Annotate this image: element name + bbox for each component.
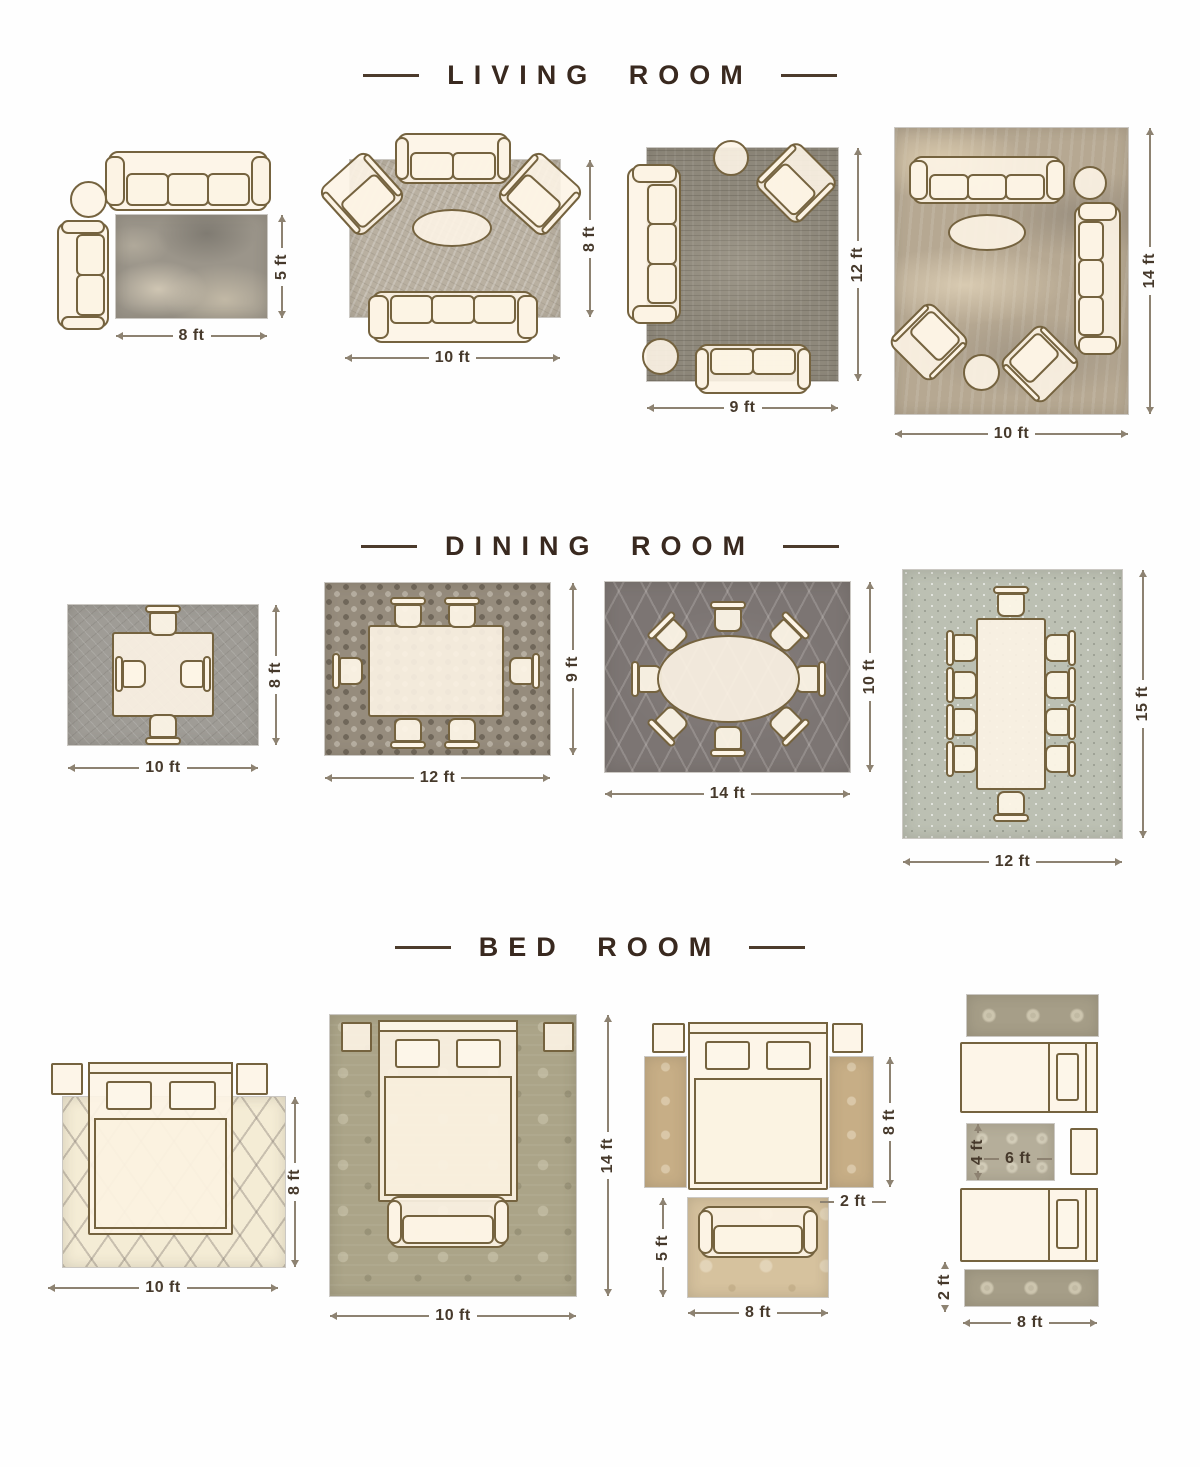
dimension-label: 14 ft: [599, 1132, 617, 1179]
blanket: [694, 1078, 822, 1184]
sofa: [1074, 205, 1121, 352]
dining-chair: [180, 660, 204, 688]
round-side-table: [1073, 166, 1107, 200]
dining-chair: [953, 671, 977, 699]
headboard: [88, 1062, 233, 1074]
height-dimension: 14 ft: [598, 1015, 618, 1296]
dimension-label: 9 ft: [724, 399, 762, 417]
dimension-label: 8 ft: [173, 327, 211, 345]
width-dimension: 10 ft: [345, 348, 560, 368]
dining-chair: [953, 745, 977, 773]
dimension-label: 8 ft: [1011, 1314, 1049, 1332]
dining-chair: [149, 612, 177, 636]
dimension-label: 5 ft: [273, 248, 291, 286]
middle-rug-width-dimension: 6 ft: [984, 1149, 1052, 1169]
rug-size-guide: LIVING ROOM 8 ft 5 ft: [0, 0, 1200, 1467]
dining-chair: [1045, 634, 1069, 662]
dining-table: [976, 618, 1046, 790]
twin-bed: [960, 1042, 1098, 1113]
runner-width-dimension: 2 ft: [820, 1192, 886, 1212]
pillow: [1056, 1199, 1079, 1249]
width-dimension: 10 ft: [68, 758, 258, 778]
dimension-label: 12 ft: [414, 769, 461, 787]
dimension-label: 10 ft: [988, 425, 1035, 443]
dining-chair: [997, 593, 1025, 617]
bench: [700, 1206, 816, 1258]
dining-chair: [714, 726, 742, 750]
nightstand: [543, 1022, 574, 1052]
blanket: [94, 1118, 227, 1229]
bed: [378, 1020, 518, 1202]
runner-rug: [830, 1057, 873, 1187]
twin-bed: [960, 1188, 1098, 1262]
dining-chair: [448, 718, 476, 742]
dimension-label: 8 ft: [739, 1304, 777, 1322]
loveseat: [697, 344, 809, 394]
bench: [389, 1196, 507, 1248]
dimension-label: 2 ft: [936, 1268, 954, 1306]
height-dimension: 8 ft: [580, 160, 600, 317]
dining-chair: [394, 718, 422, 742]
round-side-table: [70, 181, 107, 218]
dimension-label: 10 ft: [429, 349, 476, 367]
dimension-label: 5 ft: [654, 1229, 672, 1267]
dining-chair: [1045, 745, 1069, 773]
nightstand: [341, 1022, 372, 1052]
height-dimension: 14 ft: [1140, 128, 1160, 414]
dimension-label: 2 ft: [834, 1193, 872, 1211]
width-dimension: 14 ft: [605, 784, 850, 804]
dining-chair: [149, 714, 177, 738]
sofa: [627, 167, 681, 321]
width-dimension: 8 ft: [963, 1313, 1097, 1333]
rug: [116, 215, 267, 318]
bed-divider: [1048, 1044, 1050, 1111]
pillow: [106, 1081, 153, 1110]
foot-rug-height-dimension: 5 ft: [653, 1198, 673, 1297]
width-dimension: 9 ft: [647, 398, 838, 418]
width-dimension: 10 ft: [330, 1306, 576, 1326]
dimension-label: 10 ft: [861, 653, 879, 700]
width-dimension: 10 ft: [895, 424, 1128, 444]
sofa: [372, 291, 534, 343]
foot-rug-width-dimension: 8 ft: [688, 1303, 828, 1323]
width-dimension: 12 ft: [325, 768, 550, 788]
runner-rug: [645, 1057, 686, 1187]
dimension-label: 8 ft: [286, 1163, 304, 1201]
sofa: [912, 156, 1062, 204]
pillow: [766, 1041, 811, 1070]
oval-dining-table: [657, 635, 800, 723]
nightstand: [832, 1023, 863, 1053]
dining-table: [368, 625, 504, 717]
sofa: [108, 151, 268, 211]
dimension-label: 12 ft: [989, 853, 1036, 871]
dimension-label: 8 ft: [881, 1103, 899, 1141]
height-dimension: 12 ft: [848, 148, 868, 381]
nightstand: [51, 1063, 83, 1095]
oval-coffee-table: [412, 209, 492, 247]
pillow: [456, 1039, 501, 1068]
dimension-label: 6 ft: [999, 1150, 1037, 1168]
nightstand: [1070, 1128, 1098, 1175]
dimension-label: 8 ft: [267, 656, 285, 694]
dimension-label: 12 ft: [849, 241, 867, 288]
width-dimension: 8 ft: [116, 326, 267, 346]
width-dimension: 12 ft: [903, 852, 1122, 872]
height-dimension: 15 ft: [1133, 570, 1153, 838]
pillow: [169, 1081, 216, 1110]
dimension-label: 10 ft: [429, 1307, 476, 1325]
dining-chair: [953, 634, 977, 662]
runner-rug: [965, 1270, 1098, 1306]
dining-chair: [1045, 708, 1069, 736]
nightstand: [236, 1063, 268, 1095]
dining-chair: [448, 604, 476, 628]
height-dimension: 8 ft: [266, 605, 286, 745]
pillow: [705, 1041, 750, 1070]
dimension-label: 10 ft: [139, 1279, 186, 1297]
width-dimension: 10 ft: [48, 1278, 278, 1298]
headboard: [688, 1022, 828, 1034]
dining-chair: [394, 604, 422, 628]
nightstand: [652, 1023, 685, 1053]
dining-chair: [1045, 671, 1069, 699]
dimension-label: 14 ft: [704, 785, 751, 803]
dining-chair: [953, 708, 977, 736]
height-dimension: 10 ft: [860, 582, 880, 772]
loveseat: [397, 133, 509, 184]
runner-height-dimension: 8 ft: [880, 1057, 900, 1187]
round-side-table: [963, 354, 1000, 391]
pillow: [1056, 1053, 1079, 1101]
dimension-label: 15 ft: [1134, 680, 1152, 727]
headboard: [1085, 1188, 1098, 1262]
bed: [688, 1022, 828, 1190]
dimension-label: 8 ft: [581, 220, 599, 258]
dining-chair: [714, 608, 742, 632]
round-side-table: [642, 338, 679, 375]
runner-rug: [967, 995, 1098, 1036]
dimension-label: 14 ft: [1141, 247, 1159, 294]
blanket: [384, 1076, 512, 1196]
dimension-label: 10 ft: [139, 759, 186, 777]
headboard: [378, 1020, 518, 1032]
headboard: [1085, 1042, 1098, 1113]
bed: [88, 1062, 233, 1235]
dining-chair: [122, 660, 146, 688]
oval-coffee-table: [948, 214, 1026, 251]
height-dimension: 8 ft: [285, 1097, 305, 1267]
loveseat: [57, 222, 109, 328]
bed-divider: [1048, 1190, 1050, 1260]
height-dimension: 9 ft: [563, 583, 583, 755]
runner-width-dimension: 2 ft: [935, 1262, 955, 1312]
round-side-table: [713, 140, 749, 176]
dining-chair: [997, 791, 1025, 815]
dimension-label: 9 ft: [564, 650, 582, 688]
height-dimension: 5 ft: [272, 215, 292, 318]
dining-chair: [509, 657, 533, 685]
pillow: [395, 1039, 440, 1068]
dining-chair: [339, 657, 363, 685]
